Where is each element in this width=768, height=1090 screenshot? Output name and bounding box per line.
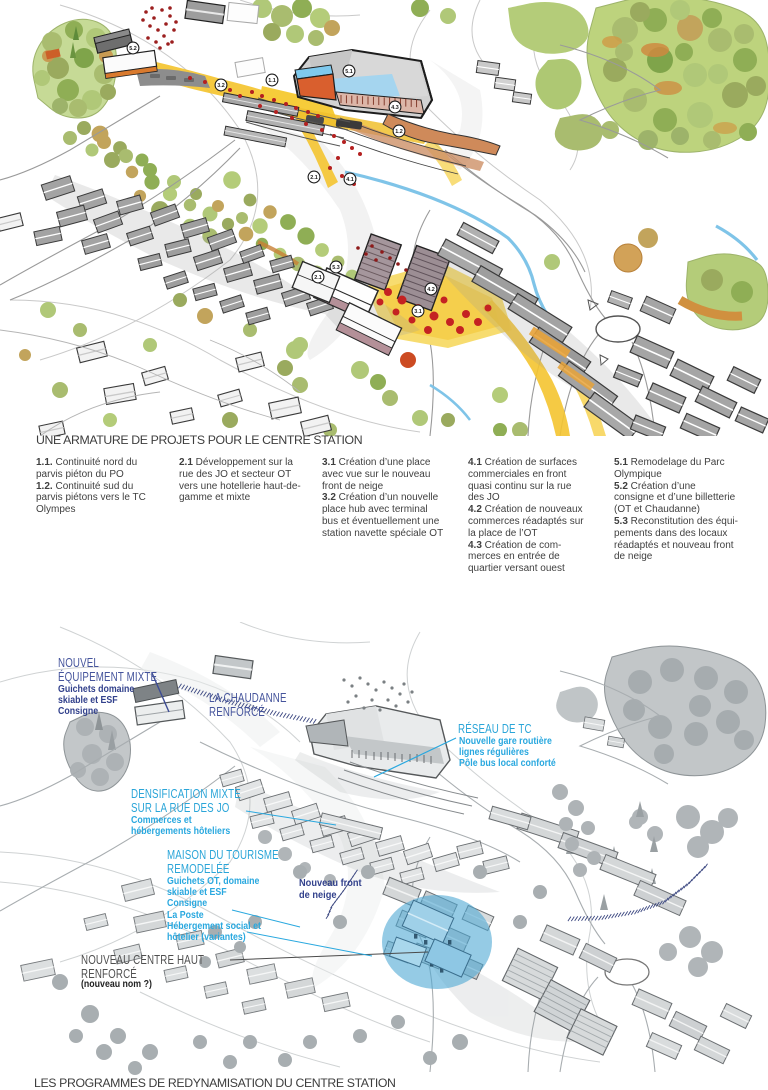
svg-text:4.3: 4.3 — [391, 105, 399, 111]
svg-text:2.1: 2.1 — [310, 175, 318, 181]
svg-text:5.1: 5.1 — [345, 69, 353, 75]
svg-text:5.2: 5.2 — [129, 46, 137, 52]
svg-text:4.2: 4.2 — [427, 287, 435, 293]
svg-text:2.1: 2.1 — [314, 275, 322, 281]
svg-text:5.3: 5.3 — [332, 265, 340, 271]
svg-text:4.1: 4.1 — [346, 177, 354, 183]
svg-text:3.2: 3.2 — [217, 83, 225, 89]
svg-text:1.1: 1.1 — [268, 78, 276, 84]
svg-text:1.2: 1.2 — [395, 129, 403, 135]
svg-text:3.1: 3.1 — [414, 309, 422, 315]
